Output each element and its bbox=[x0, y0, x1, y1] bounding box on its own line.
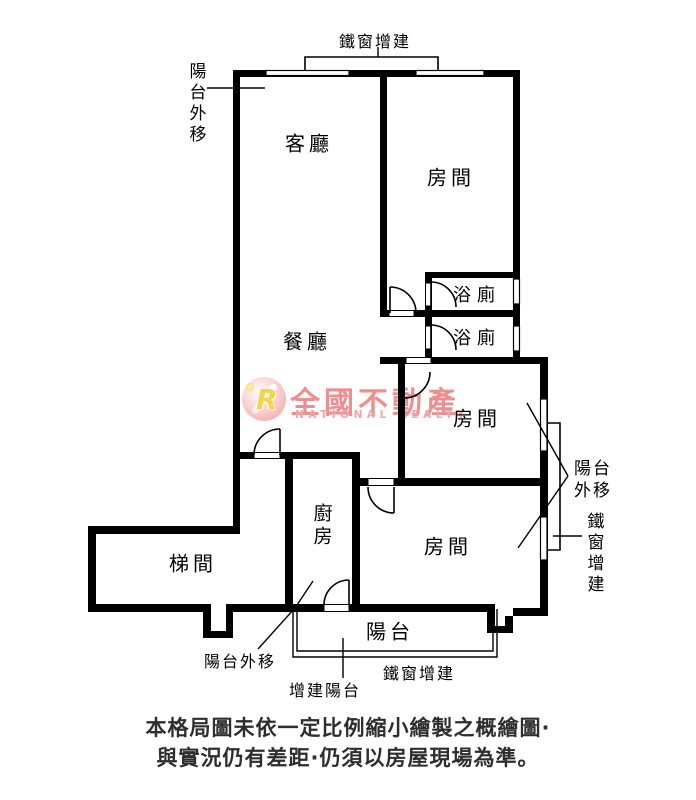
room-label-bedroom-3: 房間 bbox=[424, 531, 472, 560]
door-kitchen bbox=[324, 580, 349, 605]
threshold-kitchen bbox=[324, 605, 349, 612]
threshold-bottomroom bbox=[368, 479, 394, 486]
room-label-bedroom-2: 房間 bbox=[453, 403, 501, 432]
door-bottomroom bbox=[368, 487, 394, 513]
window-living-top bbox=[266, 71, 349, 76]
door-bath-hall bbox=[390, 287, 416, 313]
disclaimer-line-1: 本格局圖未依一定比例縮小繪製之概繪圖· bbox=[146, 712, 551, 742]
leader-balcony-moved-bottom bbox=[258, 581, 313, 649]
floor-plan: R 全國不動產 NATIONAL REALTY bbox=[0, 0, 696, 800]
label-balcony-moved-bottom: 陽台外移 bbox=[204, 648, 276, 672]
window-room1-top bbox=[416, 71, 484, 76]
label-balcony-moved-right: 陽台外移 bbox=[571, 458, 615, 502]
door-midroom bbox=[404, 372, 430, 398]
threshold-bath-hall bbox=[389, 311, 414, 317]
window-bath2-right bbox=[514, 326, 520, 351]
iron-window-bracket-right bbox=[548, 423, 560, 550]
label-added-balcony: 增建陽台 bbox=[289, 677, 361, 701]
window-midroom-right bbox=[541, 399, 548, 451]
window-bottomroom-right bbox=[541, 517, 548, 560]
room-label-bath-1: 浴廁 bbox=[453, 281, 501, 307]
room-label-stairs: 梯間 bbox=[169, 548, 217, 577]
window-bath1-right bbox=[514, 279, 520, 304]
threshold-dining bbox=[254, 453, 280, 459]
room-label-dining: 餐廳 bbox=[283, 326, 331, 355]
room-label-kitchen: 廚房 bbox=[309, 503, 336, 549]
threshold-midroom bbox=[406, 358, 431, 364]
door-dining bbox=[254, 429, 280, 455]
label-iron-window-top: 鐵窗增建 bbox=[339, 28, 411, 52]
room-label-bath-2: 浴廁 bbox=[453, 324, 501, 350]
disclaimer-line-2: 與實況仍有差距·仍須以房屋現場為準。 bbox=[157, 742, 540, 772]
label-iron-window-bottom: 鐵窗增建 bbox=[383, 660, 455, 684]
room-label-living: 客廳 bbox=[285, 128, 333, 157]
iron-window-bracket-top bbox=[305, 57, 438, 70]
room-label-bedroom-1: 房間 bbox=[427, 162, 475, 191]
room-label-balcony: 陽台 bbox=[366, 616, 414, 645]
label-iron-window-right: 鐵窗增建 bbox=[582, 512, 607, 596]
label-balcony-moved-topleft: 陽台外移 bbox=[184, 62, 209, 146]
